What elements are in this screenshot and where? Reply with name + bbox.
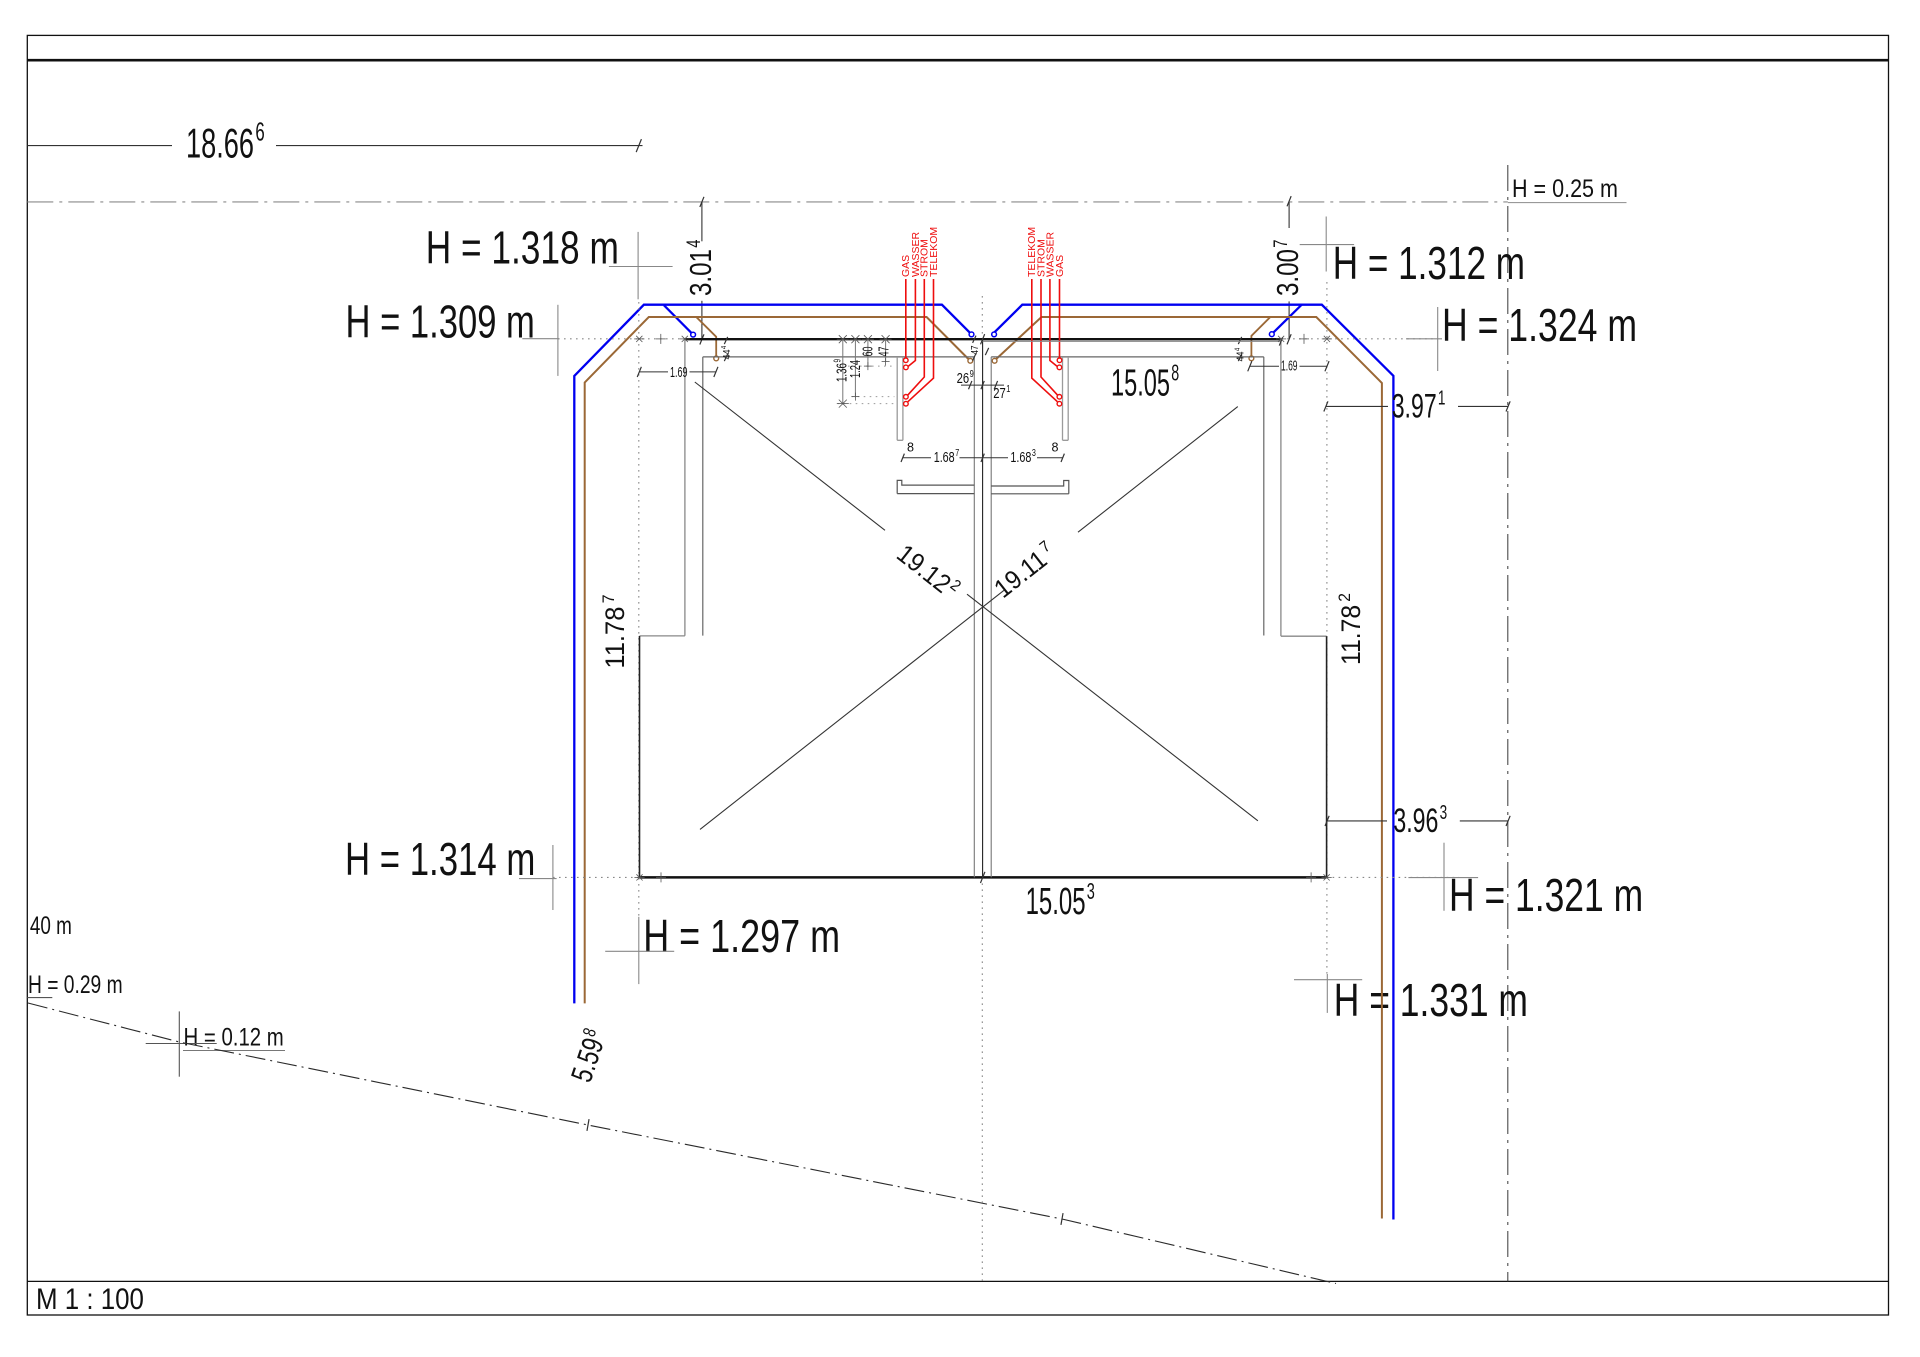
svg-text:9: 9 bbox=[970, 368, 974, 379]
svg-text:40 m: 40 m bbox=[30, 911, 72, 939]
svg-text:H = 1.318 m: H = 1.318 m bbox=[426, 222, 619, 274]
svg-text:1.68: 1.68 bbox=[934, 448, 955, 465]
svg-text:TELEKOM: TELEKOM bbox=[928, 227, 940, 277]
svg-text:1.69: 1.69 bbox=[1281, 357, 1298, 374]
svg-text:8: 8 bbox=[1052, 439, 1059, 454]
svg-text:4: 4 bbox=[683, 240, 704, 248]
svg-text:4: 4 bbox=[1234, 347, 1242, 351]
svg-text:15.05: 15.05 bbox=[1026, 879, 1086, 922]
svg-text:6: 6 bbox=[255, 117, 264, 147]
svg-text:H = 1.314 m: H = 1.314 m bbox=[345, 833, 535, 885]
svg-text:H = 0.29 m: H = 0.29 m bbox=[28, 971, 123, 999]
svg-text:26: 26 bbox=[957, 369, 970, 386]
svg-text:H = 0.12 m: H = 0.12 m bbox=[184, 1022, 284, 1050]
svg-text:3: 3 bbox=[1440, 801, 1448, 823]
svg-text:H = 1.312 m: H = 1.312 m bbox=[1333, 237, 1525, 289]
svg-text:47: 47 bbox=[875, 346, 892, 356]
svg-text:7: 7 bbox=[599, 594, 619, 603]
svg-text:1: 1 bbox=[1438, 387, 1446, 409]
svg-text:47: 47 bbox=[969, 346, 980, 355]
svg-text:3.97: 3.97 bbox=[1392, 388, 1437, 425]
svg-text:3.00: 3.00 bbox=[1270, 249, 1305, 296]
svg-text:3: 3 bbox=[1087, 880, 1095, 905]
svg-text:8: 8 bbox=[907, 439, 914, 454]
svg-text:4: 4 bbox=[721, 345, 729, 349]
svg-text:1.69: 1.69 bbox=[670, 364, 688, 381]
svg-text:15.05: 15.05 bbox=[1111, 361, 1170, 404]
svg-text:27: 27 bbox=[993, 384, 1006, 401]
svg-text:H = 1.297 m: H = 1.297 m bbox=[643, 911, 840, 962]
svg-text:7: 7 bbox=[955, 447, 959, 458]
svg-text:3: 3 bbox=[1032, 447, 1036, 458]
svg-text:GAS: GAS bbox=[1054, 255, 1066, 277]
svg-text:60: 60 bbox=[859, 346, 876, 356]
svg-text:11.78: 11.78 bbox=[1337, 605, 1366, 665]
svg-text:8: 8 bbox=[1171, 361, 1179, 386]
svg-text:1: 1 bbox=[1006, 383, 1010, 394]
svg-text:3.96: 3.96 bbox=[1393, 803, 1438, 840]
svg-text:H = 1.331 m: H = 1.331 m bbox=[1334, 975, 1528, 1027]
svg-text:1.68: 1.68 bbox=[1010, 448, 1031, 465]
svg-text:H = 1.309 m: H = 1.309 m bbox=[346, 296, 535, 348]
svg-text:H = 1.321 m: H = 1.321 m bbox=[1449, 870, 1643, 922]
svg-text:5.59: 5.59 bbox=[564, 1034, 610, 1086]
svg-text:11.78: 11.78 bbox=[599, 607, 630, 669]
svg-text:1.24: 1.24 bbox=[847, 360, 864, 378]
svg-text:3.01: 3.01 bbox=[683, 249, 718, 296]
svg-text:H = 1.324 m: H = 1.324 m bbox=[1442, 300, 1637, 351]
svg-text:7: 7 bbox=[1270, 240, 1291, 248]
svg-text:M 1 : 100: M 1 : 100 bbox=[36, 1282, 144, 1315]
svg-text:9: 9 bbox=[831, 359, 843, 363]
svg-text:H = 0.25 m: H = 0.25 m bbox=[1512, 175, 1618, 203]
svg-text:2: 2 bbox=[1335, 593, 1354, 602]
svg-text:18.66: 18.66 bbox=[186, 121, 254, 167]
